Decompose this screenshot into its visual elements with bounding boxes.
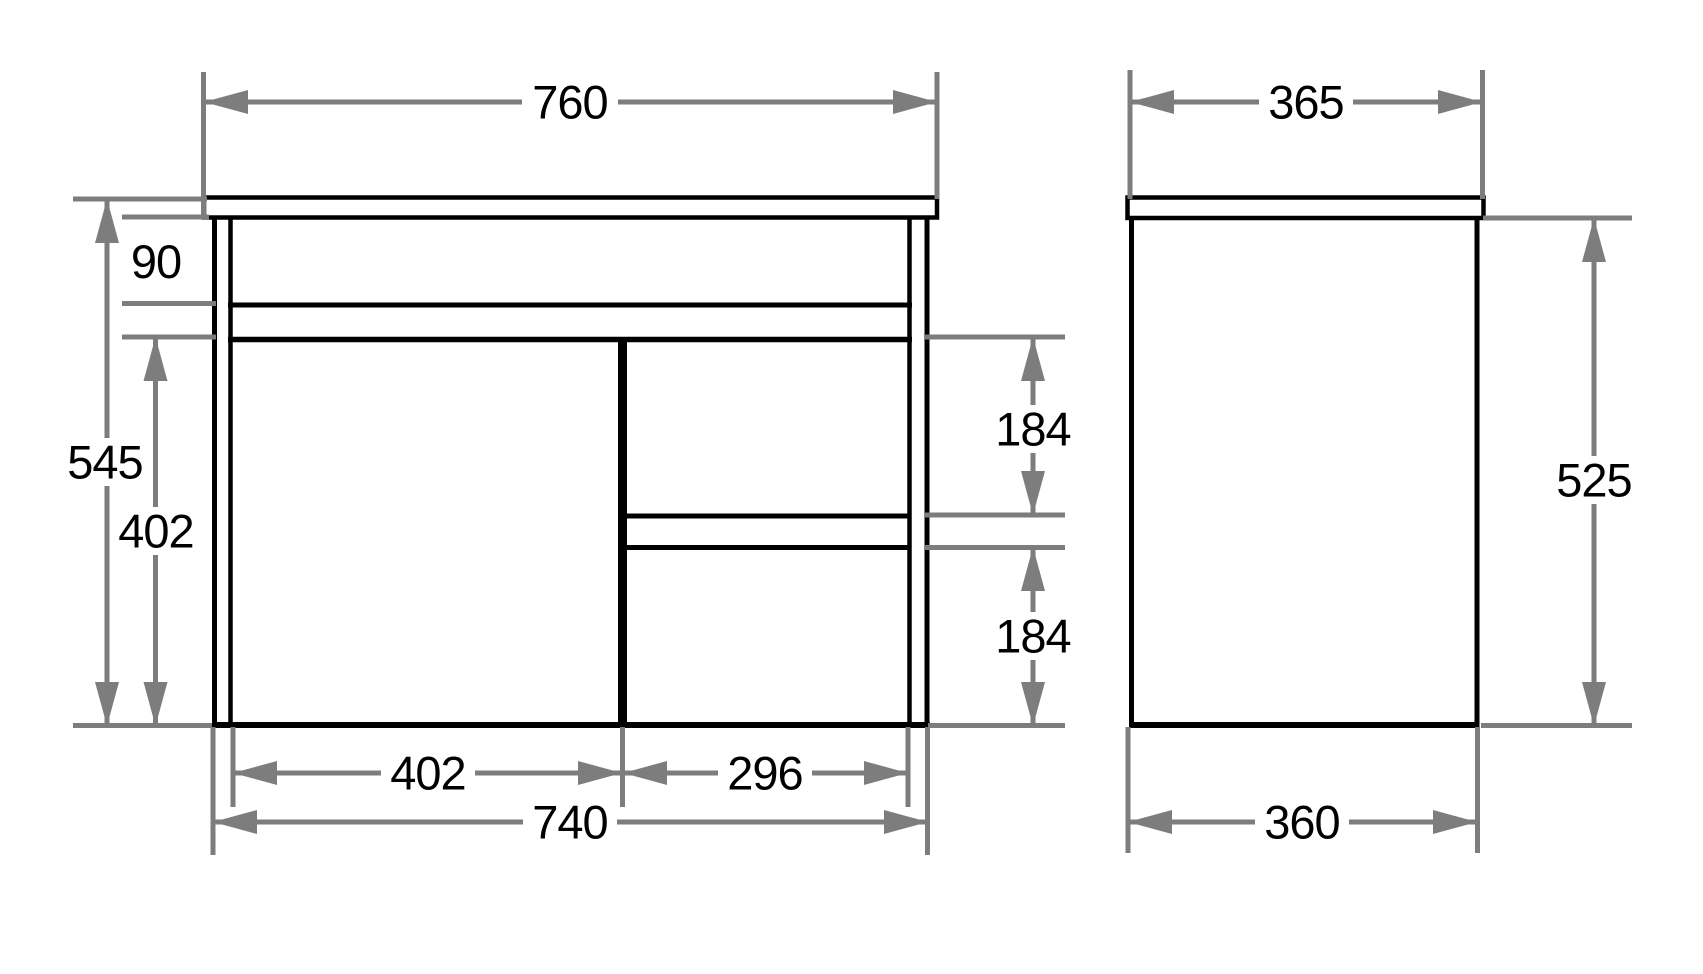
dim-cabinet-width: 740 xyxy=(213,727,928,855)
technical-drawing-page: 760 90 545 402 xyxy=(0,0,1703,969)
dim-label: 365 xyxy=(1268,76,1343,129)
arrow-down-icon xyxy=(144,682,168,726)
dim-label: 296 xyxy=(727,747,802,800)
side-view xyxy=(1128,198,1484,728)
dim-top-rail-height: 90 xyxy=(122,217,216,304)
dim-label: 525 xyxy=(1556,454,1631,507)
dim-label: 90 xyxy=(131,235,181,288)
arrow-right-icon xyxy=(864,761,908,785)
arrow-left-icon xyxy=(1128,810,1172,834)
front-view xyxy=(204,198,937,728)
arrow-right-icon xyxy=(884,810,928,834)
dim-drawer-width: 296 xyxy=(623,727,908,807)
dim-label: 545 xyxy=(67,436,142,489)
dim-label: 740 xyxy=(532,796,607,849)
dim-drawer-top-height: 184 xyxy=(925,337,1080,515)
arrow-right-icon xyxy=(578,761,622,785)
arrow-up-icon xyxy=(1021,337,1045,381)
dim-drawer-bottom-height: 184 xyxy=(925,547,1080,726)
arrow-down-icon xyxy=(1021,682,1045,726)
arrow-right-icon xyxy=(1433,810,1477,834)
dim-door-height: 402 xyxy=(112,337,216,726)
dim-label: 184 xyxy=(995,403,1070,456)
dim-label: 760 xyxy=(532,76,607,129)
front-countertop xyxy=(204,198,937,218)
dim-label: 184 xyxy=(995,610,1070,663)
arrow-right-icon xyxy=(1438,90,1482,114)
arrow-up-icon xyxy=(1021,547,1045,591)
dimensions: 760 90 545 402 xyxy=(58,70,1641,855)
arrow-left-icon xyxy=(204,90,248,114)
dim-label: 402 xyxy=(118,505,193,558)
cabinet-technical-drawing: 760 90 545 402 xyxy=(0,0,1703,969)
arrow-left-icon xyxy=(213,810,257,834)
side-countertop xyxy=(1128,198,1484,219)
arrow-down-icon xyxy=(1021,471,1045,515)
arrow-left-icon xyxy=(1130,90,1174,114)
arrow-right-icon xyxy=(893,90,937,114)
arrow-left-icon xyxy=(623,761,667,785)
arrow-up-icon xyxy=(1582,218,1606,262)
dim-body-depth: 360 xyxy=(1128,727,1478,853)
arrow-down-icon xyxy=(95,682,119,726)
dim-label: 402 xyxy=(390,747,465,800)
front-center-divider xyxy=(618,339,627,727)
arrow-up-icon xyxy=(95,199,119,243)
dim-label: 360 xyxy=(1264,796,1339,849)
dim-countertop-depth: 365 xyxy=(1130,70,1483,199)
arrow-left-icon xyxy=(233,761,277,785)
arrow-up-icon xyxy=(144,337,168,381)
arrow-down-icon xyxy=(1582,682,1606,726)
dim-body-height: 525 xyxy=(1481,218,1641,726)
